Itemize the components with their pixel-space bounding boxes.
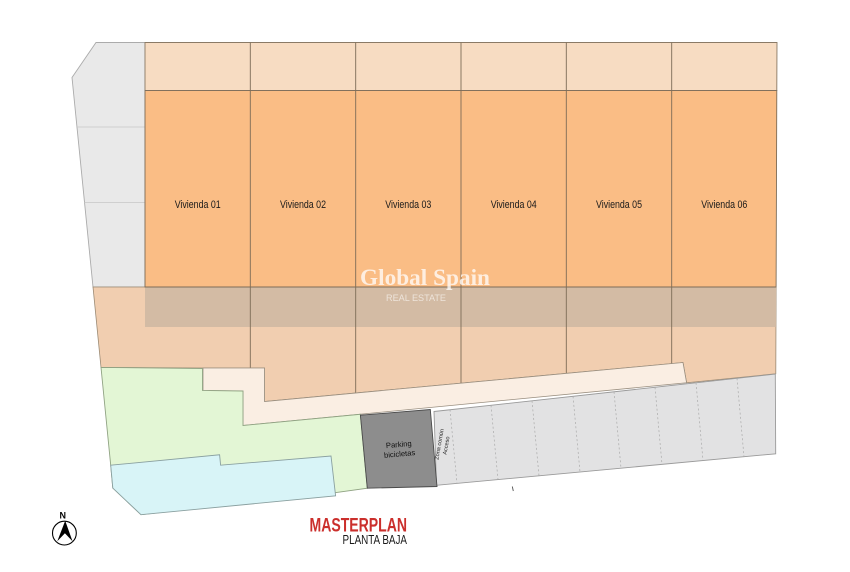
svg-text:Vivienda 02: Vivienda 02 bbox=[280, 199, 326, 211]
svg-text:REAL ESTATE: REAL ESTATE bbox=[386, 293, 446, 304]
svg-text:Vivienda 01: Vivienda 01 bbox=[175, 199, 221, 211]
svg-text:Vivienda 03: Vivienda 03 bbox=[385, 199, 431, 211]
svg-text:N: N bbox=[59, 511, 66, 521]
svg-text:Vivienda 04: Vivienda 04 bbox=[491, 199, 537, 211]
svg-text:Vivienda 05: Vivienda 05 bbox=[596, 199, 642, 211]
svg-text:Vivienda 06: Vivienda 06 bbox=[701, 199, 747, 211]
svg-text:Global Spain: Global Spain bbox=[360, 265, 490, 290]
svg-text:PLANTA BAJA: PLANTA BAJA bbox=[343, 532, 408, 547]
